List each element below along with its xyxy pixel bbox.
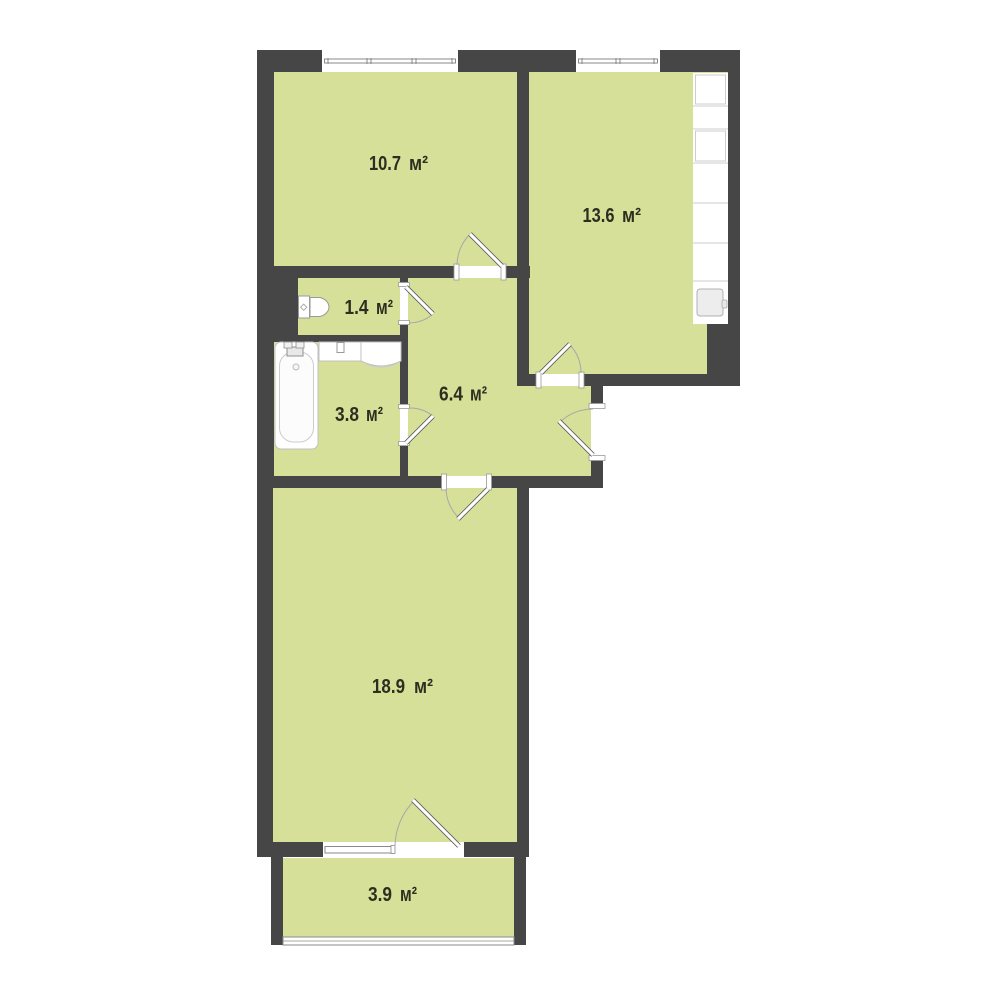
svg-text:м²: м² [622,204,641,227]
svg-text:18.9: 18.9 [372,675,405,698]
svg-text:3.9: 3.9 [368,883,392,906]
svg-text:м²: м² [470,383,487,406]
svg-text:1.4: 1.4 [345,296,370,319]
svg-text:м²: м² [414,675,433,698]
svg-text:м²: м² [409,152,428,175]
svg-text:м²: м² [366,403,383,426]
svg-text:6.4: 6.4 [439,383,464,406]
svg-text:м²: м² [400,883,417,906]
svg-text:3.8: 3.8 [335,403,359,426]
svg-text:м²: м² [376,296,393,319]
svg-text:10.7: 10.7 [369,152,401,175]
svg-text:13.6: 13.6 [583,204,615,227]
